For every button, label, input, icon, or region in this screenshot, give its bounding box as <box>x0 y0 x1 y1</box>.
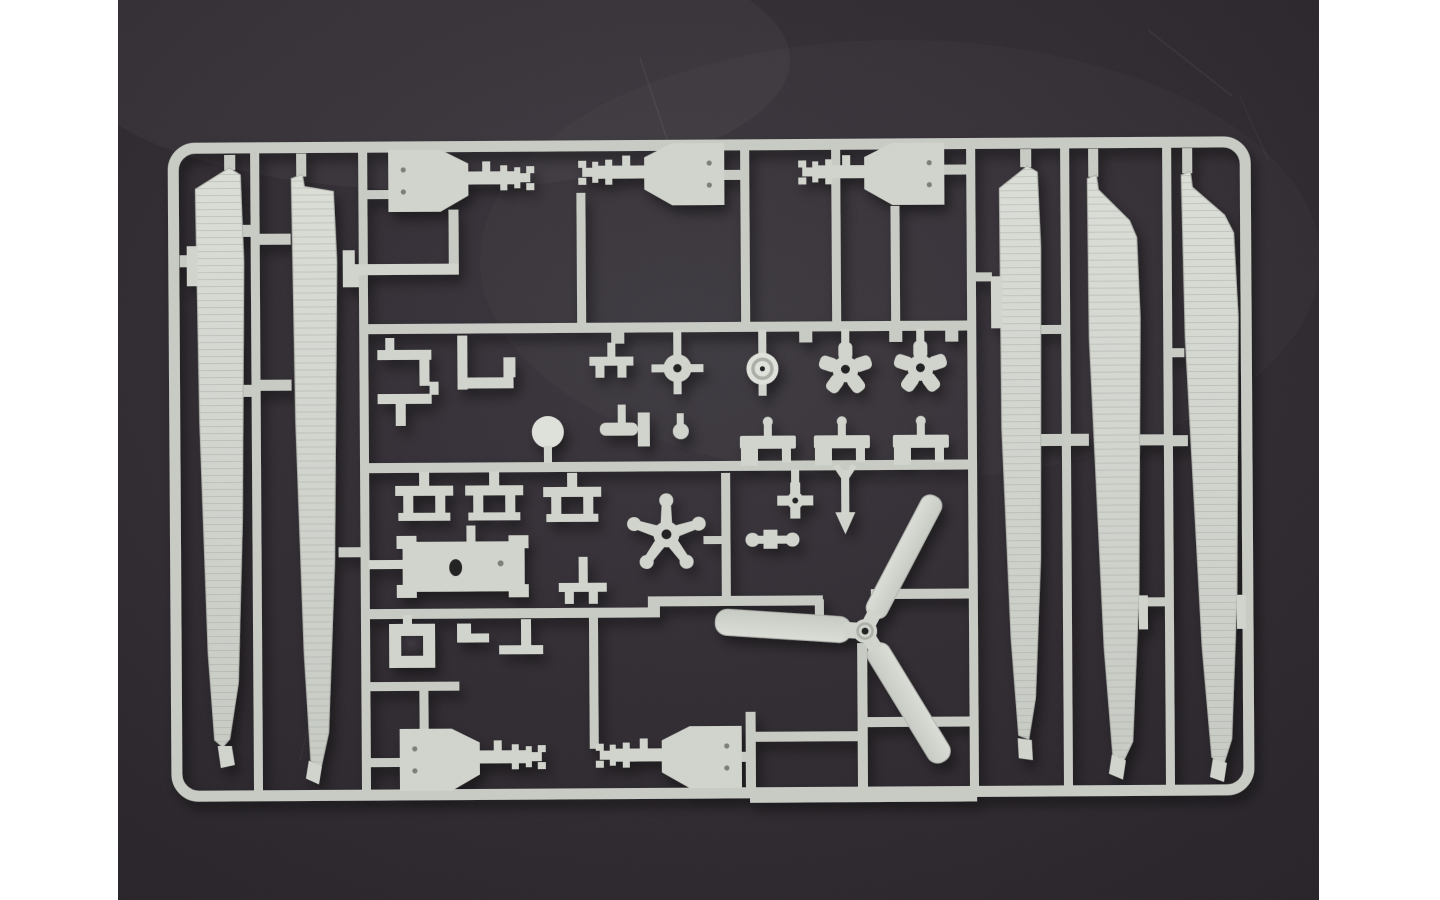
right-white-margin <box>1319 0 1440 900</box>
sprue-photo-canvas <box>0 0 1440 900</box>
film-grain-overlay <box>118 0 1319 900</box>
left-white-margin <box>0 0 118 900</box>
photo-of-model-kit-sprue <box>0 0 1440 900</box>
